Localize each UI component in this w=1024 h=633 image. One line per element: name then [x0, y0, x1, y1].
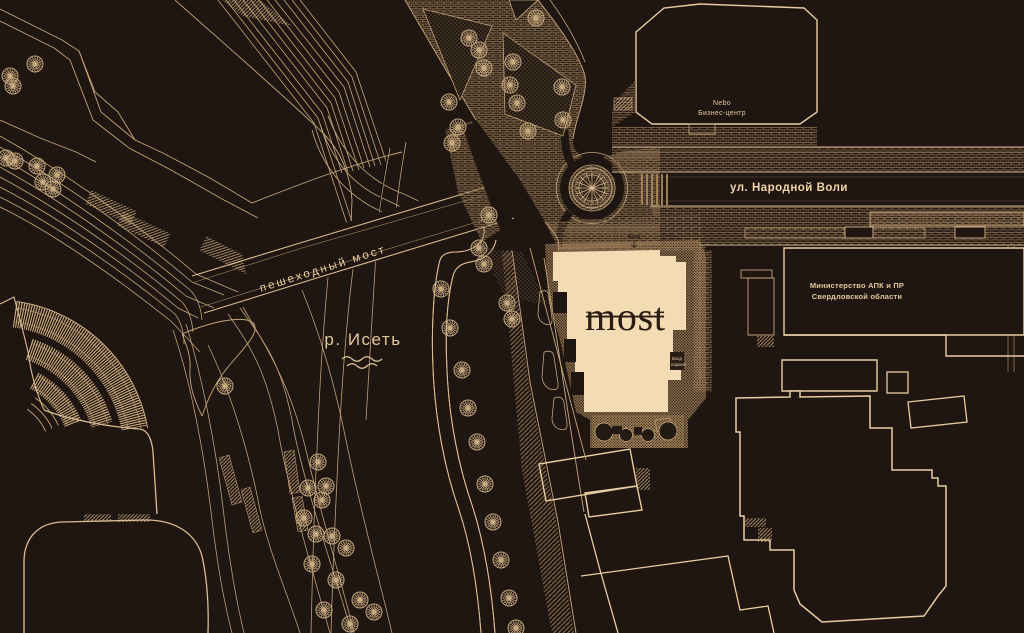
- svg-text:Вход: Вход: [672, 356, 682, 361]
- svg-text:р. Исеть: р. Исеть: [324, 330, 401, 349]
- svg-text:most: most: [585, 294, 665, 339]
- svg-text:Бизнес-центр: Бизнес-центр: [698, 110, 746, 117]
- svg-text:ул. Народной Воли: ул. Народной Воли: [730, 182, 848, 194]
- svg-text:Nebo: Nebo: [713, 100, 731, 107]
- svg-text:Вход: Вход: [628, 234, 641, 240]
- svg-text:Свердловской области: Свердловской области: [812, 292, 903, 301]
- svg-text:в паркинг: в паркинг: [667, 362, 687, 367]
- svg-text:Министерство АПК и ПР: Министерство АПК и ПР: [810, 281, 904, 290]
